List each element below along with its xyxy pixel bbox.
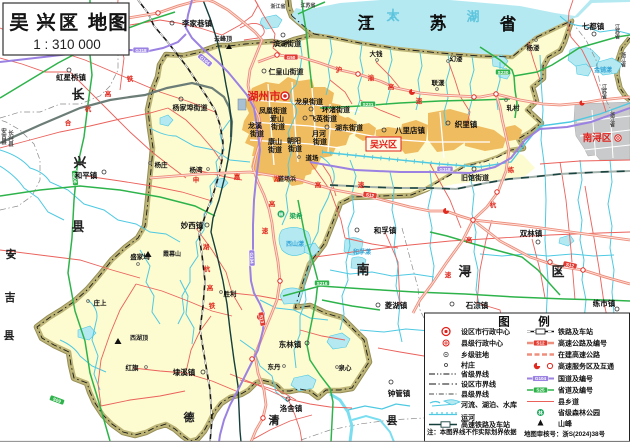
svg-text:渝: 渝 bbox=[368, 73, 375, 82]
svg-text:S216: S216 bbox=[317, 281, 328, 286]
svg-text:石淙镇: 石淙镇 bbox=[465, 300, 489, 310]
svg-text:庄上: 庄上 bbox=[94, 298, 108, 307]
svg-text:东丹: 东丹 bbox=[268, 362, 282, 371]
svg-text:G104: G104 bbox=[535, 376, 547, 381]
svg-text:梁希: 梁希 bbox=[289, 211, 304, 220]
svg-text:胜利: 胜利 bbox=[223, 289, 238, 298]
svg-text:朝阳: 朝阳 bbox=[287, 136, 301, 145]
svg-text:高速服务区及互通: 高速服务区及互通 bbox=[558, 362, 615, 371]
svg-text:德: 德 bbox=[183, 410, 195, 424]
svg-text:道场浜: 道场浜 bbox=[278, 175, 296, 183]
svg-text:道场: 道场 bbox=[306, 153, 320, 162]
svg-text:红旗: 红旗 bbox=[126, 363, 140, 372]
svg-text:合: 合 bbox=[64, 118, 72, 127]
svg-text:西湖顶: 西湖顶 bbox=[130, 334, 148, 342]
svg-text:钟管镇: 钟管镇 bbox=[388, 388, 411, 398]
svg-text:江苏省: 江苏省 bbox=[601, 83, 608, 100]
svg-text:1 : 310 000: 1 : 310 000 bbox=[33, 37, 101, 52]
svg-text:江苏省: 江苏省 bbox=[614, 23, 621, 40]
svg-text:康山: 康山 bbox=[268, 137, 282, 146]
svg-text:湖: 湖 bbox=[203, 242, 210, 251]
svg-text:林: 林 bbox=[538, 410, 543, 417]
svg-text:国道及编号: 国道及编号 bbox=[558, 374, 593, 383]
svg-text:八里店镇: 八里店镇 bbox=[394, 125, 425, 135]
svg-text:村庄: 村庄 bbox=[461, 361, 475, 370]
svg-text:S25: S25 bbox=[536, 388, 545, 393]
svg-text:运河: 运河 bbox=[461, 413, 475, 422]
svg-text:速: 速 bbox=[416, 96, 423, 105]
svg-text:霞幕山: 霞幕山 bbox=[163, 250, 181, 258]
svg-text:盛家坞: 盛家坞 bbox=[130, 252, 150, 261]
svg-text:高: 高 bbox=[105, 89, 112, 98]
svg-text:速: 速 bbox=[445, 270, 452, 279]
svg-text:S231: S231 bbox=[363, 102, 374, 107]
svg-text:嘉: 嘉 bbox=[233, 172, 241, 181]
svg-text:例: 例 bbox=[538, 315, 550, 329]
svg-text:山峰: 山峰 bbox=[558, 419, 573, 428]
svg-text:高速铁路及车站: 高速铁路及车站 bbox=[461, 420, 510, 429]
svg-text:申: 申 bbox=[193, 175, 200, 184]
svg-text:注：本图界线不作实际划界依据: 注：本图界线不作实际划界依据 bbox=[427, 427, 517, 436]
svg-text:G104: G104 bbox=[249, 252, 254, 264]
svg-text:埭溪镇: 埭溪镇 bbox=[173, 367, 196, 377]
svg-text:长兴县: 长兴县 bbox=[7, 129, 14, 148]
svg-text:虹星桥镇: 虹星桥镇 bbox=[56, 72, 86, 82]
svg-text:速: 速 bbox=[262, 226, 269, 235]
svg-text:杨湾: 杨湾 bbox=[190, 165, 204, 174]
svg-text:乡级驻地: 乡级驻地 bbox=[461, 350, 489, 359]
svg-text:菱湖镇: 菱湖镇 bbox=[385, 300, 408, 310]
svg-text:高: 高 bbox=[269, 199, 276, 208]
svg-text:织里镇: 织里镇 bbox=[455, 119, 478, 129]
svg-text:省级森林公园: 省级森林公园 bbox=[557, 408, 600, 417]
svg-text:沪: 沪 bbox=[336, 65, 343, 74]
svg-text:爱山: 爱山 bbox=[270, 114, 284, 123]
svg-text:湖州市: 湖州市 bbox=[248, 89, 281, 103]
svg-text:南浔区: 南浔区 bbox=[583, 132, 612, 144]
svg-text:龙溪: 龙溪 bbox=[247, 121, 263, 130]
svg-text:月河: 月河 bbox=[311, 129, 326, 138]
svg-text:设区市行政中心: 设区市行政中心 bbox=[461, 327, 510, 336]
svg-text:七都镇: 七都镇 bbox=[582, 21, 605, 31]
svg-text:街道: 街道 bbox=[249, 129, 264, 138]
svg-text:县级界线: 县级界线 bbox=[461, 390, 489, 399]
svg-text:杨溇: 杨溇 bbox=[527, 43, 541, 52]
svg-text:凤凰街道: 凤凰街道 bbox=[259, 106, 287, 115]
svg-text:妙西镇: 妙西镇 bbox=[181, 220, 204, 230]
svg-text:杭: 杭 bbox=[204, 264, 211, 273]
svg-text:街道: 街道 bbox=[267, 145, 282, 154]
svg-text:大钱: 大钱 bbox=[370, 49, 384, 58]
svg-text:街道: 街道 bbox=[287, 144, 302, 153]
svg-text:速: 速 bbox=[358, 180, 365, 189]
svg-text:设区市界线: 设区市界线 bbox=[461, 380, 496, 389]
svg-text:省级界线: 省级界线 bbox=[460, 370, 489, 379]
svg-text:东林镇: 东林镇 bbox=[279, 339, 302, 349]
svg-text:洛舍镇: 洛舍镇 bbox=[280, 403, 303, 413]
svg-text:县级行政中心: 县级行政中心 bbox=[461, 339, 503, 348]
svg-text:和孚漾: 和孚漾 bbox=[352, 248, 372, 256]
svg-text:G318: G318 bbox=[135, 48, 147, 53]
svg-text:街道: 街道 bbox=[312, 137, 327, 146]
svg-text:和孚镇: 和孚镇 bbox=[374, 225, 397, 235]
svg-text:铁: 铁 bbox=[126, 74, 134, 83]
svg-text:泉心: 泉心 bbox=[339, 363, 353, 372]
svg-text:杭: 杭 bbox=[490, 200, 497, 209]
svg-text:浙江省: 浙江省 bbox=[270, 3, 285, 10]
svg-text:练市镇: 练市镇 bbox=[593, 298, 616, 308]
svg-text:轧村: 轧村 bbox=[507, 103, 521, 112]
svg-text:滨湖街道: 滨湖街道 bbox=[273, 39, 301, 48]
svg-text:高: 高 bbox=[466, 235, 473, 244]
svg-text:西山漾: 西山漾 bbox=[286, 240, 305, 248]
svg-text:G318: G318 bbox=[439, 167, 451, 172]
svg-text:高: 高 bbox=[388, 82, 395, 91]
svg-text:铁路及车站: 铁路及车站 bbox=[558, 327, 593, 336]
svg-text:环渚街道: 环渚街道 bbox=[322, 105, 350, 114]
svg-text:杨庄: 杨庄 bbox=[155, 160, 169, 169]
svg-text:飞英街道: 飞英街道 bbox=[309, 114, 337, 123]
svg-text:S230: S230 bbox=[498, 70, 509, 75]
svg-text:李家巷镇: 李家巷镇 bbox=[181, 18, 212, 28]
svg-text:街道: 街道 bbox=[270, 122, 285, 131]
svg-text:铁: 铁 bbox=[208, 301, 216, 310]
svg-text:林: 林 bbox=[279, 211, 284, 218]
svg-text:双林镇: 双林镇 bbox=[520, 228, 543, 238]
svg-text:高: 高 bbox=[207, 283, 214, 292]
svg-text:浙江省: 浙江省 bbox=[620, 51, 627, 68]
svg-text:G50: G50 bbox=[287, 55, 296, 60]
svg-text:练: 练 bbox=[508, 165, 515, 174]
svg-text:地图审核号：浙S(2024)38号: 地图审核号：浙S(2024)38号 bbox=[524, 429, 606, 438]
svg-text:杭: 杭 bbox=[85, 104, 92, 113]
svg-text:旧馆街道: 旧馆街道 bbox=[461, 173, 489, 182]
svg-text:省道及编号: 省道及编号 bbox=[557, 386, 593, 395]
svg-text:图: 图 bbox=[498, 315, 510, 329]
svg-text:安吉县: 安吉县 bbox=[0, 127, 7, 146]
svg-text:金铺漾: 金铺漾 bbox=[593, 66, 613, 74]
svg-text:杨家埠街道: 杨家埠街道 bbox=[173, 103, 208, 112]
svg-text:湖东街道: 湖东街道 bbox=[335, 123, 363, 132]
svg-text:高: 高 bbox=[315, 180, 322, 189]
svg-text:龙泉街道: 龙泉街道 bbox=[294, 97, 323, 106]
svg-text:浙江省: 浙江省 bbox=[609, 111, 616, 128]
svg-text:和平镇: 和平镇 bbox=[75, 170, 98, 180]
svg-text:长: 长 bbox=[71, 87, 85, 102]
svg-text:吴兴区: 吴兴区 bbox=[370, 139, 397, 150]
svg-text:幻溇: 幻溇 bbox=[450, 54, 464, 63]
svg-text:县乡道: 县乡道 bbox=[558, 397, 579, 406]
svg-text:高速公路及编号: 高速公路及编号 bbox=[558, 339, 607, 348]
svg-text:S12: S12 bbox=[536, 341, 545, 346]
svg-text:仁皇山街道: 仁皇山街道 bbox=[269, 67, 304, 76]
svg-text:河流、湖泊、水库: 河流、湖泊、水库 bbox=[461, 400, 517, 409]
svg-text:江苏省: 江苏省 bbox=[300, 2, 315, 9]
svg-text:在建高速公路: 在建高速公路 bbox=[558, 350, 601, 359]
svg-text:联漾: 联漾 bbox=[432, 78, 446, 87]
svg-text:云峰顶: 云峰顶 bbox=[214, 35, 232, 43]
